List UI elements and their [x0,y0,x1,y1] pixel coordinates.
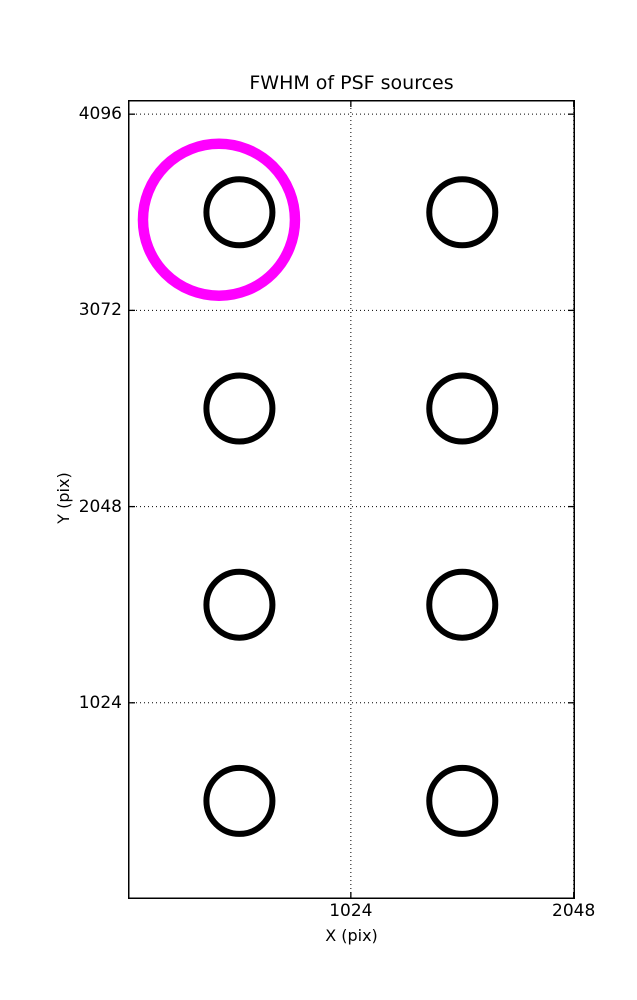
psf-sources-marker [206,179,272,245]
plot-area [128,100,575,899]
psf-sources-marker [429,768,495,834]
psf-sources-marker [429,375,495,441]
x-tick-label: 1024 [311,902,391,920]
x-tick-label: 2048 [534,902,614,920]
axes-border [129,101,575,899]
psf-sources-marker [206,375,272,441]
x-axis-label: X (pix) [128,926,575,945]
figure: FWHM of PSF sources Y (pix) X (pix) 1024… [0,0,637,1000]
chart-title: FWHM of PSF sources [128,72,575,94]
y-axis-label: Y (pix) [54,428,74,568]
y-tick-label: 2048 [79,498,122,516]
psf-sources-marker [206,572,272,638]
psf-sources-marker [429,179,495,245]
y-tick-label: 1024 [79,694,122,712]
psf-sources-marker [429,572,495,638]
y-tick-label: 4096 [79,105,122,123]
psf-sources-marker [206,768,272,834]
y-tick-label: 3072 [79,301,122,319]
